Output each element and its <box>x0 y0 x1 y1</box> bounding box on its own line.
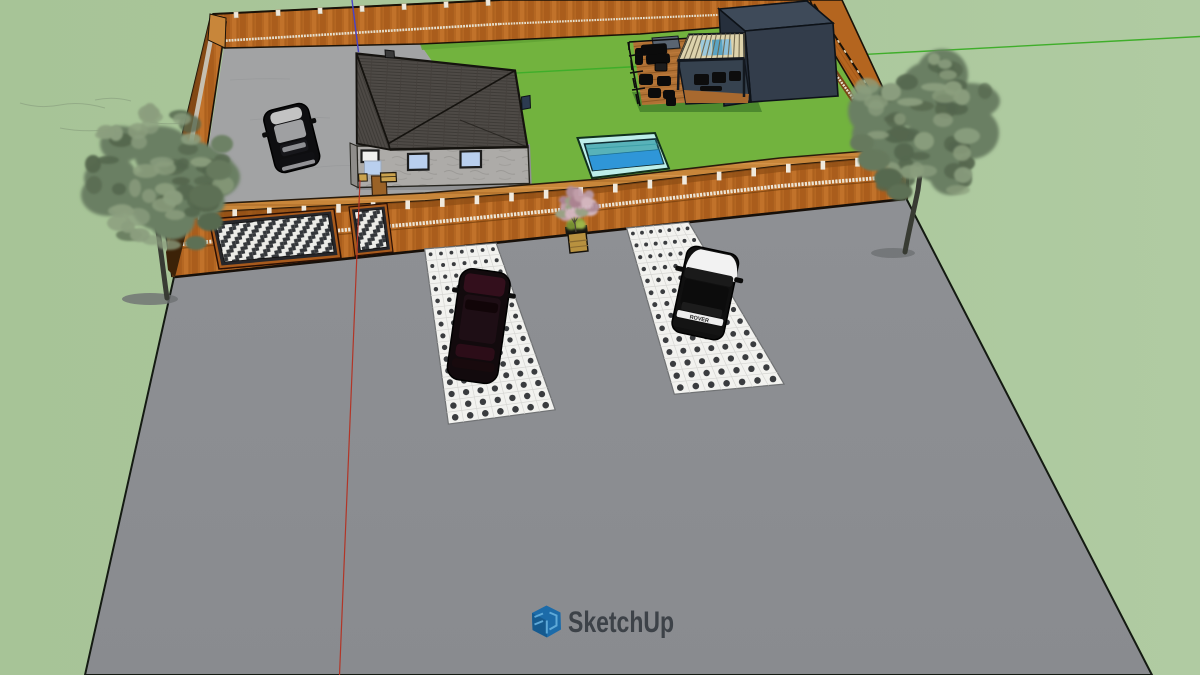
svg-text:SketchUp: SketchUp <box>568 606 674 639</box>
